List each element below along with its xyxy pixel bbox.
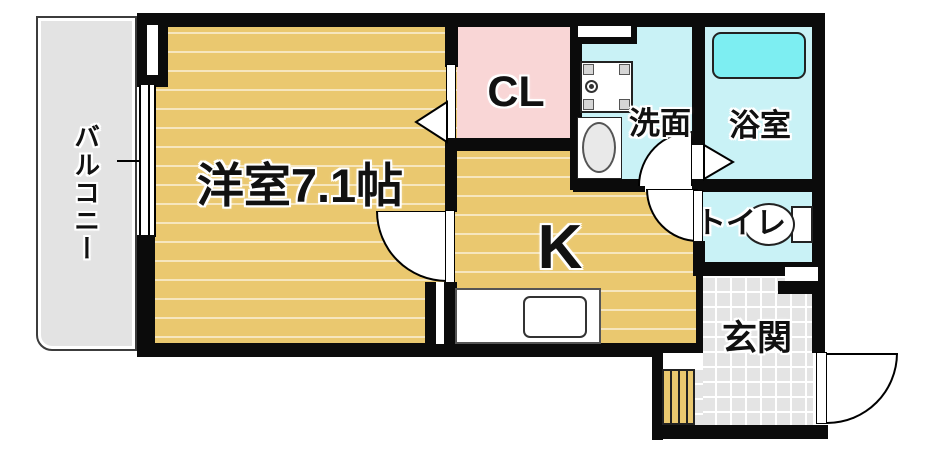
window-icon <box>139 85 156 237</box>
washroom-counter-top <box>572 20 637 44</box>
wall <box>445 13 458 67</box>
wall <box>137 343 652 357</box>
balcony-label: バルコニー <box>64 103 106 283</box>
pan-corner <box>583 99 594 110</box>
folding-door-icon <box>414 99 448 145</box>
wall-gap <box>436 282 444 344</box>
counter-inset <box>578 26 631 37</box>
wall <box>445 138 582 151</box>
entrance-label: 玄関 <box>706 317 808 361</box>
wall <box>573 179 645 192</box>
folding-door-icon <box>703 142 735 182</box>
wall <box>778 281 818 294</box>
pan-drain-dot <box>589 84 594 89</box>
bathtub-icon <box>712 32 806 79</box>
entrance-step <box>663 353 703 368</box>
kitchen-counter <box>455 288 601 344</box>
door-swing-icon <box>827 353 898 424</box>
sink-basin-icon <box>582 122 616 173</box>
wall <box>652 425 828 439</box>
wall <box>445 149 457 212</box>
kitchen-sink-icon <box>523 296 587 338</box>
western-room-label: 洋室7.1帖 <box>155 157 445 215</box>
pan-corner <box>619 64 630 75</box>
toilet-label: トイレ <box>692 205 790 243</box>
wall-pillar-slot <box>147 25 158 75</box>
western-room-door-leaf <box>445 210 455 284</box>
window-center-line <box>148 85 150 237</box>
pan-drain <box>585 80 598 93</box>
wall <box>652 343 700 353</box>
closet-label: CL <box>478 66 554 120</box>
window-tick <box>117 160 139 162</box>
wall <box>137 13 825 27</box>
bathroom-label: 浴室 <box>715 107 805 145</box>
floor-plan: バルコニー 洋室7.1帖 CL K 洗面 浴室 トイレ 玄関 <box>0 0 941 451</box>
kitchen-label: K <box>513 212 607 284</box>
entrance-door-leaf <box>816 352 827 424</box>
pan-corner <box>583 64 594 75</box>
shoe-cabinet-icon <box>662 369 695 425</box>
wall <box>425 282 436 344</box>
washroom-label: 洗面 <box>615 105 705 143</box>
wall <box>137 235 155 345</box>
wall-notch <box>785 267 818 281</box>
wall <box>696 276 703 353</box>
